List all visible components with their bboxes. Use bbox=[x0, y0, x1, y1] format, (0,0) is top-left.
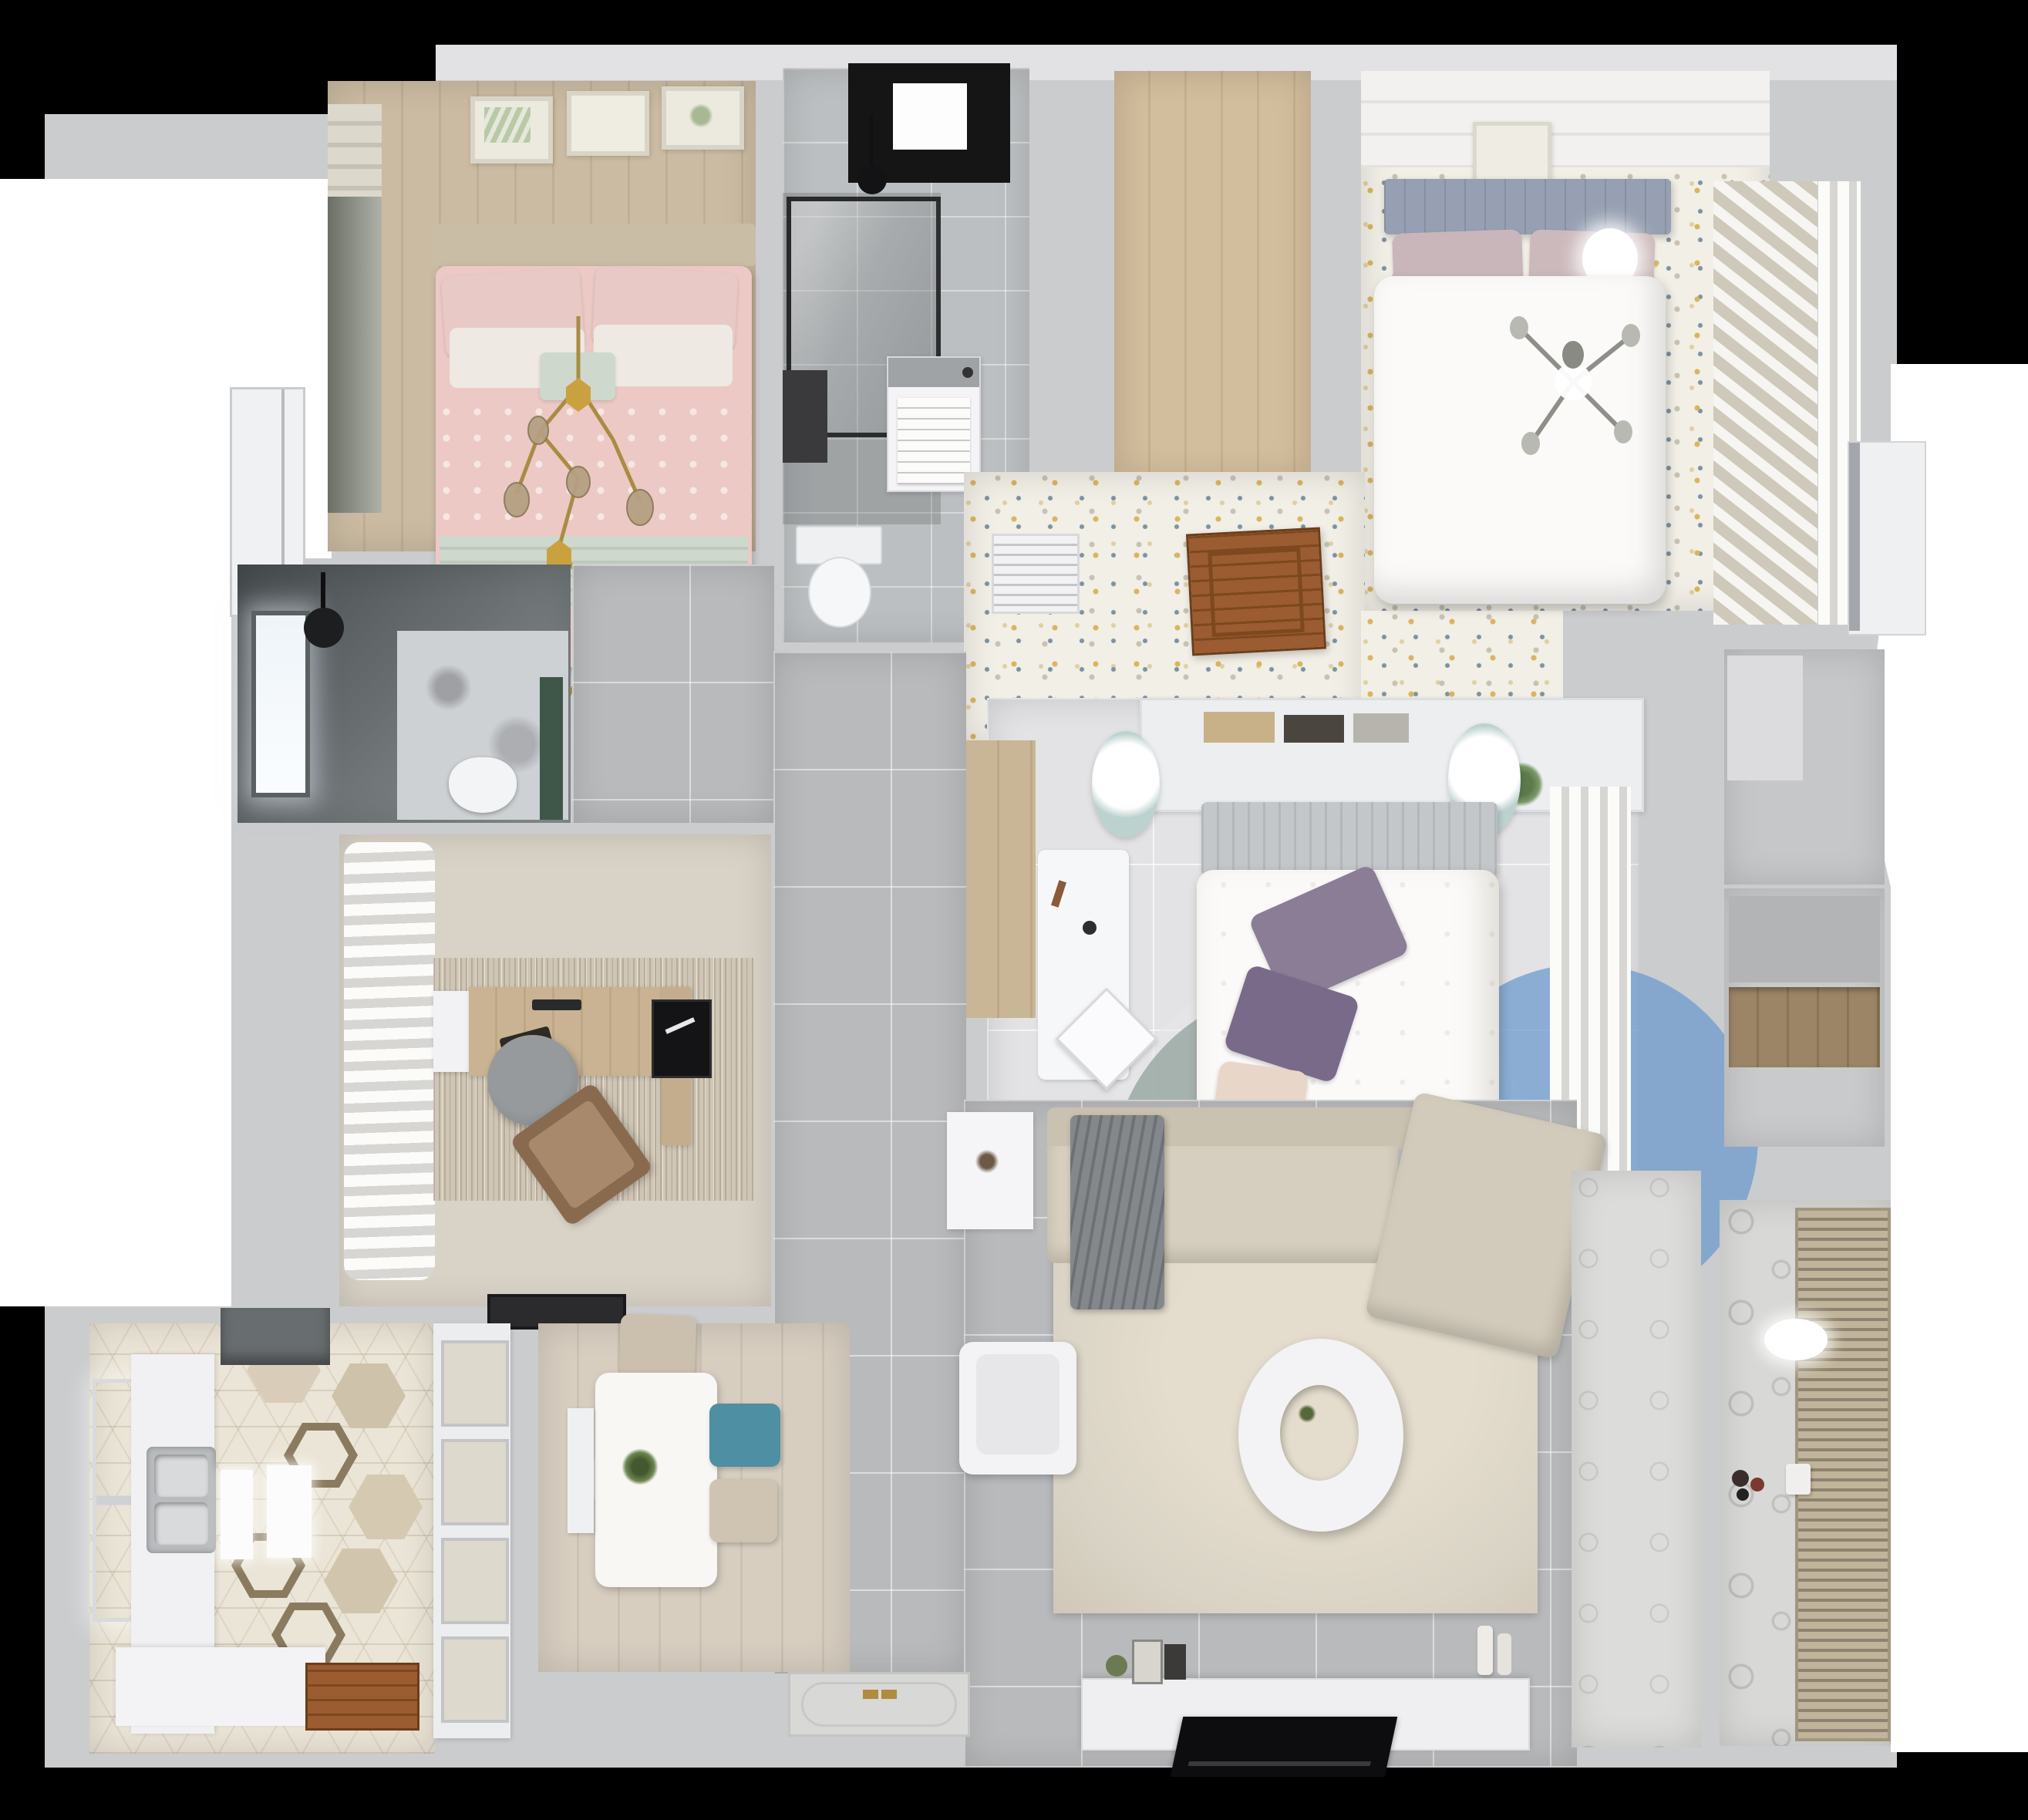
console-decor-plate bbox=[1106, 1655, 1127, 1677]
console-decor-frames bbox=[1164, 1644, 1186, 1680]
art-frame bbox=[662, 86, 744, 150]
art-frame bbox=[470, 96, 553, 163]
kitchen-wood-door bbox=[305, 1663, 419, 1731]
dining-bench bbox=[568, 1408, 594, 1533]
glass-panel bbox=[441, 1439, 509, 1525]
bed-headboard-pink bbox=[432, 224, 756, 266]
glass-panel bbox=[441, 1340, 509, 1427]
side-table-plant bbox=[973, 1148, 1001, 1175]
wardrobe-slatted bbox=[1713, 181, 1817, 625]
armchair-white bbox=[959, 1342, 1076, 1475]
art-leaf bbox=[484, 107, 531, 143]
nook-shadow bbox=[1729, 896, 1880, 982]
pendant-lamp-icon bbox=[857, 165, 887, 194]
floor-plan-render bbox=[0, 0, 2028, 1820]
master-headboard bbox=[1384, 179, 1671, 234]
roman-shade bbox=[328, 104, 382, 197]
hall-arm bbox=[572, 565, 774, 823]
bedroom-wood-strip bbox=[966, 740, 1036, 1018]
armchair-seat bbox=[976, 1354, 1059, 1454]
wooden-shelf bbox=[1729, 987, 1880, 1067]
sputnik-chandelier-icon bbox=[1488, 301, 1658, 470]
desk-pens bbox=[1051, 880, 1066, 907]
glass-front-cabinet bbox=[433, 1323, 510, 1738]
toilet-dark-bath bbox=[449, 757, 517, 813]
door-emboss bbox=[801, 1682, 957, 1727]
glass-panel bbox=[441, 1538, 509, 1624]
shelf-book bbox=[1204, 712, 1275, 743]
green-accent-panel bbox=[540, 677, 563, 820]
watering-can bbox=[1786, 1464, 1811, 1495]
front-door-flat bbox=[788, 1672, 970, 1737]
art-sketch bbox=[665, 1017, 696, 1034]
serving-board bbox=[221, 1470, 253, 1559]
skylight-pane bbox=[893, 83, 967, 150]
floor-toy bbox=[1732, 1470, 1749, 1487]
dining-chair-teal bbox=[709, 1404, 780, 1467]
floor-toy bbox=[1737, 1488, 1749, 1501]
black-art-frame bbox=[652, 999, 712, 1078]
rain-shower-head bbox=[304, 608, 344, 648]
room-walk-in-closet bbox=[1114, 71, 1311, 480]
flat-tv bbox=[1171, 1717, 1398, 1777]
serving-board bbox=[267, 1465, 312, 1558]
mask-left-strip bbox=[163, 557, 231, 1306]
study-sideboard bbox=[433, 991, 470, 1072]
gray-throw-blanket bbox=[1070, 1115, 1164, 1309]
shelf-book bbox=[1284, 715, 1344, 743]
vent-grille bbox=[992, 534, 1080, 614]
kitchen-sink bbox=[147, 1447, 216, 1553]
console-decor-vases bbox=[1497, 1633, 1511, 1675]
desk-lamp-icon bbox=[1083, 921, 1097, 935]
door-handle-brass bbox=[863, 1690, 878, 1699]
shower-shelf bbox=[783, 370, 827, 463]
kitchen-counter-bottom bbox=[116, 1647, 325, 1726]
art-sprig bbox=[688, 100, 714, 131]
right-entry-door bbox=[1848, 441, 1926, 635]
mask-bottom-band bbox=[0, 1768, 2028, 1820]
glass-panel bbox=[441, 1636, 509, 1723]
study-curtains bbox=[344, 842, 435, 1280]
door-handle-brass bbox=[881, 1690, 897, 1699]
washer-manual bbox=[898, 398, 970, 484]
sink-basin bbox=[154, 1502, 208, 1545]
range-hood bbox=[221, 1308, 330, 1365]
bed-center-headboard bbox=[1201, 802, 1497, 876]
master-ceiling-planks bbox=[1361, 71, 1770, 167]
coffee-table-sprig bbox=[1297, 1404, 1317, 1424]
sink-basin bbox=[154, 1454, 208, 1497]
door-panel bbox=[1208, 548, 1305, 637]
pendant-stem bbox=[870, 116, 873, 170]
side-table bbox=[947, 1112, 1033, 1229]
art-frame bbox=[567, 91, 649, 156]
wardrobe-slats bbox=[1713, 181, 1817, 625]
floor-toy bbox=[1750, 1478, 1764, 1491]
shower-window bbox=[251, 611, 310, 797]
door-edge bbox=[1849, 443, 1860, 631]
coffee-table-hole bbox=[1280, 1385, 1359, 1481]
shelf-tray bbox=[1353, 713, 1409, 743]
dining-chair-beige bbox=[709, 1479, 777, 1542]
open-wooden-door bbox=[1186, 527, 1326, 656]
shower-pipe bbox=[321, 572, 325, 612]
pendant-pouf-mint bbox=[1092, 731, 1160, 838]
dining-chair-beige bbox=[619, 1313, 697, 1377]
hall-right-door bbox=[1727, 656, 1803, 780]
toilet-bowl bbox=[808, 557, 871, 628]
tv-glint bbox=[1188, 1761, 1371, 1766]
balcony-ceiling-light bbox=[1764, 1319, 1828, 1360]
entry-hall bbox=[1572, 1171, 1701, 1748]
console-decor-vases bbox=[1477, 1626, 1493, 1675]
washer-knob bbox=[962, 367, 973, 378]
table-plant bbox=[622, 1448, 659, 1485]
monitor-icon bbox=[532, 999, 581, 1010]
console-decor-frames bbox=[1132, 1640, 1163, 1684]
